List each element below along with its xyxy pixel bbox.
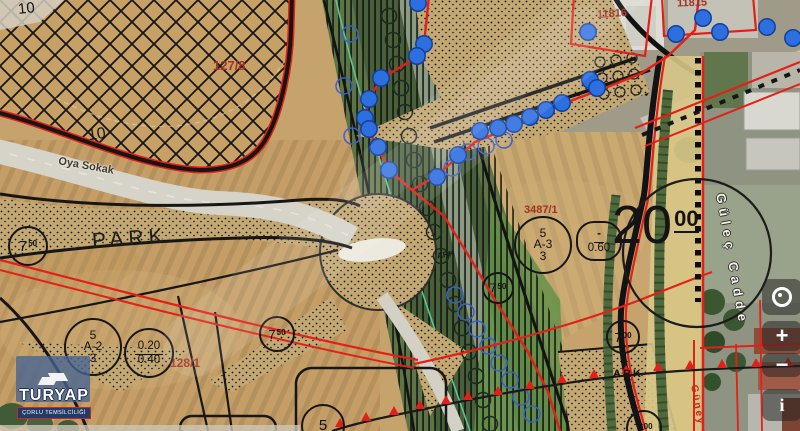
zoom-out-button[interactable]: − [762, 353, 800, 377]
logo-title: TURYAP [6, 387, 102, 405]
handshake-icon [40, 371, 66, 387]
zoom-in-button[interactable]: + [762, 321, 800, 351]
logo-subtitle: ÇORLU TEMSİLCİLİĞİ [17, 407, 91, 419]
locate-icon [772, 287, 792, 307]
zoning-map-canvas [0, 0, 800, 431]
locate-button[interactable] [762, 279, 800, 315]
map-viewport: 10 127/8 10 Oya Sokak PARK 128/1 3487/1 … [0, 0, 800, 431]
info-button[interactable]: i [762, 389, 800, 421]
